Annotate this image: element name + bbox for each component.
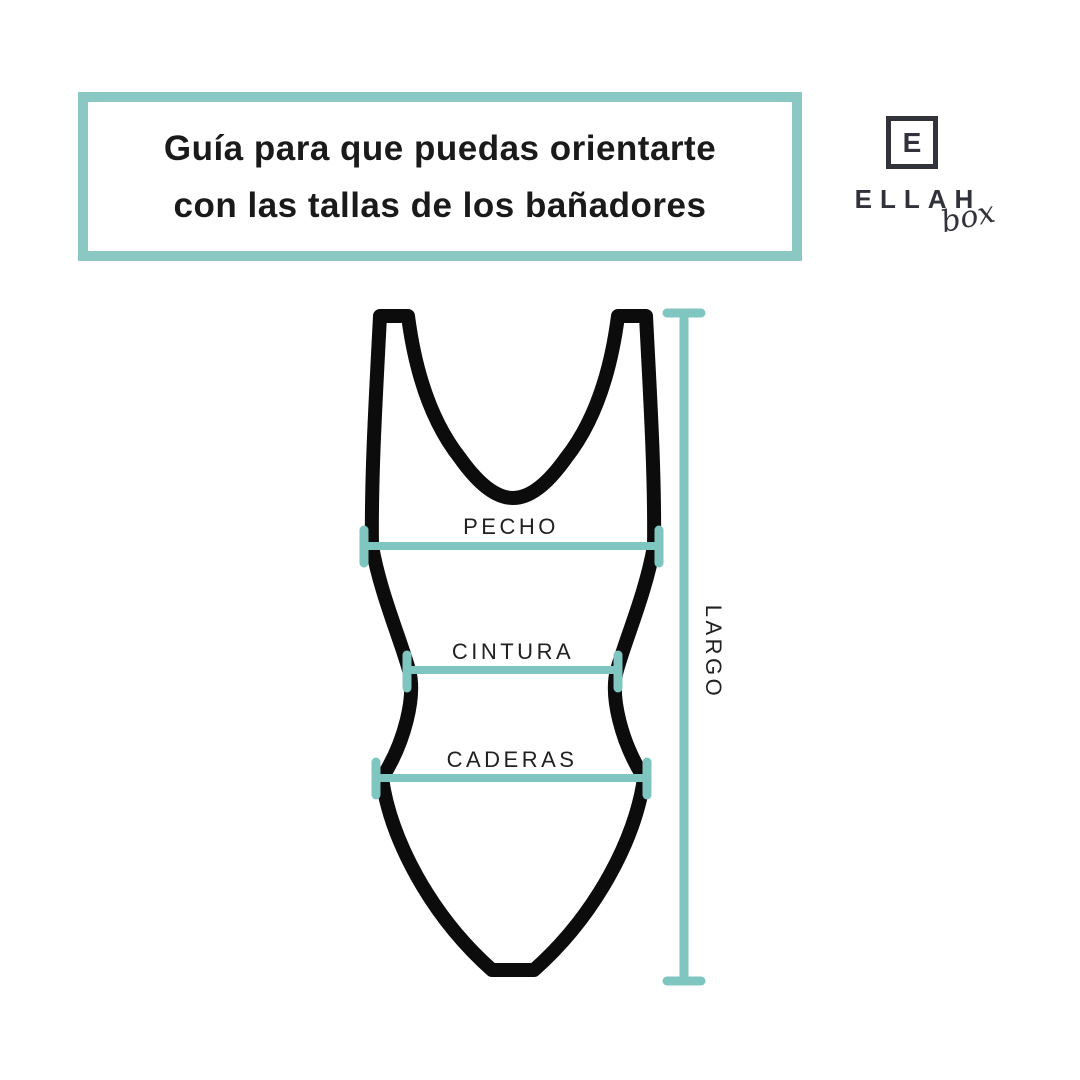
hips-label: CADERAS xyxy=(447,747,578,773)
size-guide-infographic: Guía para que puedas orientarte con las … xyxy=(0,0,1080,1080)
waist-label: CINTURA xyxy=(452,639,574,665)
chest-label: PECHO xyxy=(463,514,559,540)
length-label: LARGO xyxy=(700,605,726,700)
swimsuit-diagram xyxy=(0,0,1080,1080)
